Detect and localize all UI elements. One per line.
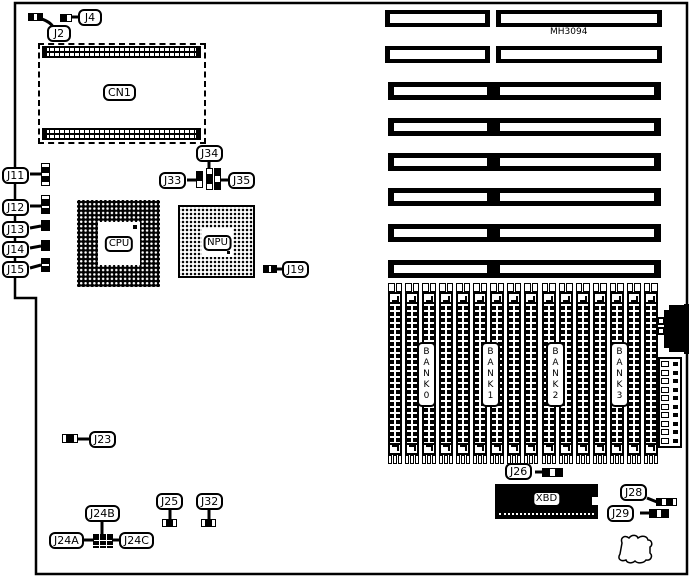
cn1-label: CN1 — [103, 84, 136, 101]
jumper-pins-j33 — [196, 171, 203, 188]
jumper-label-j32: J32 — [196, 493, 223, 510]
jumper-label-j24a: J24A — [49, 532, 84, 549]
npu-chip: NPU — [178, 205, 255, 278]
keyboard-din-connector-step-bottom — [669, 347, 684, 352]
jumper-label-j34: J34 — [196, 145, 223, 162]
simm-socket — [388, 283, 402, 464]
jumper-pins-j26 — [542, 468, 563, 477]
jumper-pins-j2 — [28, 13, 43, 21]
jumper-label-j28: J28 — [620, 484, 647, 501]
simm-socket — [439, 283, 453, 464]
isa-slot — [388, 82, 661, 100]
jumper-pins-j15 — [41, 258, 50, 272]
jumper-label-j33: J33 — [159, 172, 186, 189]
simm-socket — [507, 283, 521, 464]
jumper-label-j12: J12 — [2, 199, 29, 216]
xbd-notch — [592, 497, 600, 505]
isa-slot-segment — [496, 46, 662, 63]
simm-socket — [644, 283, 658, 464]
isa-slot-segment — [385, 10, 490, 27]
isa-slot — [388, 188, 661, 206]
cpu-chip: CPU — [77, 200, 160, 287]
cn1-pin-strip-bottom — [42, 128, 201, 140]
jumper-block-j24 — [93, 534, 113, 548]
jumper-label-j11: J11 — [2, 167, 29, 184]
keyboard-din-connector-flange — [684, 304, 689, 354]
bank-label: BANK2 — [546, 342, 565, 407]
simm-socket — [524, 283, 538, 464]
keyboard-din-connector — [664, 310, 685, 348]
simm-socket — [456, 283, 470, 464]
bank-label: BANK3 — [610, 342, 629, 407]
jumper-pins-j25 — [162, 519, 177, 527]
bank-label: BANK0 — [417, 342, 436, 407]
jumper-label-j15: J15 — [2, 261, 29, 278]
cpu-pin1-mark — [133, 225, 137, 229]
jumper-pins-j4 — [60, 14, 72, 22]
jumper-pins-j12 — [41, 195, 50, 214]
npu-pin1-mark — [227, 251, 230, 254]
cn1-pin-strip-top — [42, 46, 201, 58]
simm-socket — [593, 283, 607, 464]
speaker-outline — [619, 535, 652, 562]
isa-slot — [388, 153, 661, 171]
jumper-label-j35: J35 — [228, 172, 255, 189]
jumper-label-j26: J26 — [505, 463, 532, 480]
jumper-pins-j28 — [656, 498, 677, 506]
keyboard-din-connector-step-top — [669, 305, 684, 311]
jumper-pins-j11 — [41, 163, 50, 186]
jumper-label-j23: J23 — [89, 431, 116, 448]
keyboard-din-pin — [657, 317, 665, 325]
npu-die: NPU — [202, 228, 233, 257]
isa-slot-segment — [496, 10, 662, 27]
isa-slot — [388, 224, 661, 242]
power-connector — [658, 357, 682, 448]
jumper-pins-j19 — [263, 265, 277, 273]
jumper-pins-j35 — [214, 168, 221, 190]
motherboard-diagram: CN1 J2 J4 CPU NPU J11 J12 J13 J14 J15 J3… — [0, 0, 689, 577]
jumper-label-j14: J14 — [2, 241, 29, 258]
cpu-die: CPU — [98, 222, 140, 265]
jumper-pins-j29 — [649, 509, 669, 518]
jumper-label-j29: J29 — [607, 505, 634, 522]
jumper-label-j13: J13 — [2, 221, 29, 238]
bank-label: BANK1 — [481, 342, 500, 407]
isa-slot — [388, 260, 661, 278]
jumper-pins-j14 — [41, 240, 50, 251]
board-model-number: MH3094 — [550, 27, 587, 37]
xbd-label: XBD — [532, 491, 561, 507]
jumper-pins-j13 — [41, 220, 50, 231]
keyboard-din-pin — [657, 327, 665, 335]
jumper-label-j25: J25 — [156, 493, 183, 510]
isa-slot-segment — [385, 46, 490, 63]
jumper-label-j24c: J24C — [119, 532, 154, 549]
jumper-label-j19: J19 — [282, 261, 309, 278]
jumper-label-j24b: J24B — [85, 505, 120, 522]
jumper-pins-j32 — [201, 519, 216, 527]
npu-label: NPU — [203, 235, 232, 251]
jumper-pins-j34 — [206, 168, 213, 190]
jumper-pins-j23 — [62, 434, 78, 443]
xbd-chip: XBD — [495, 484, 598, 519]
isa-slot — [388, 118, 661, 136]
jumper-label-j2: J2 — [47, 25, 71, 42]
cpu-label: CPU — [105, 236, 133, 252]
xbd-pin-row — [499, 513, 594, 515]
simm-socket — [576, 283, 590, 464]
jumper-label-j4: J4 — [78, 9, 102, 26]
